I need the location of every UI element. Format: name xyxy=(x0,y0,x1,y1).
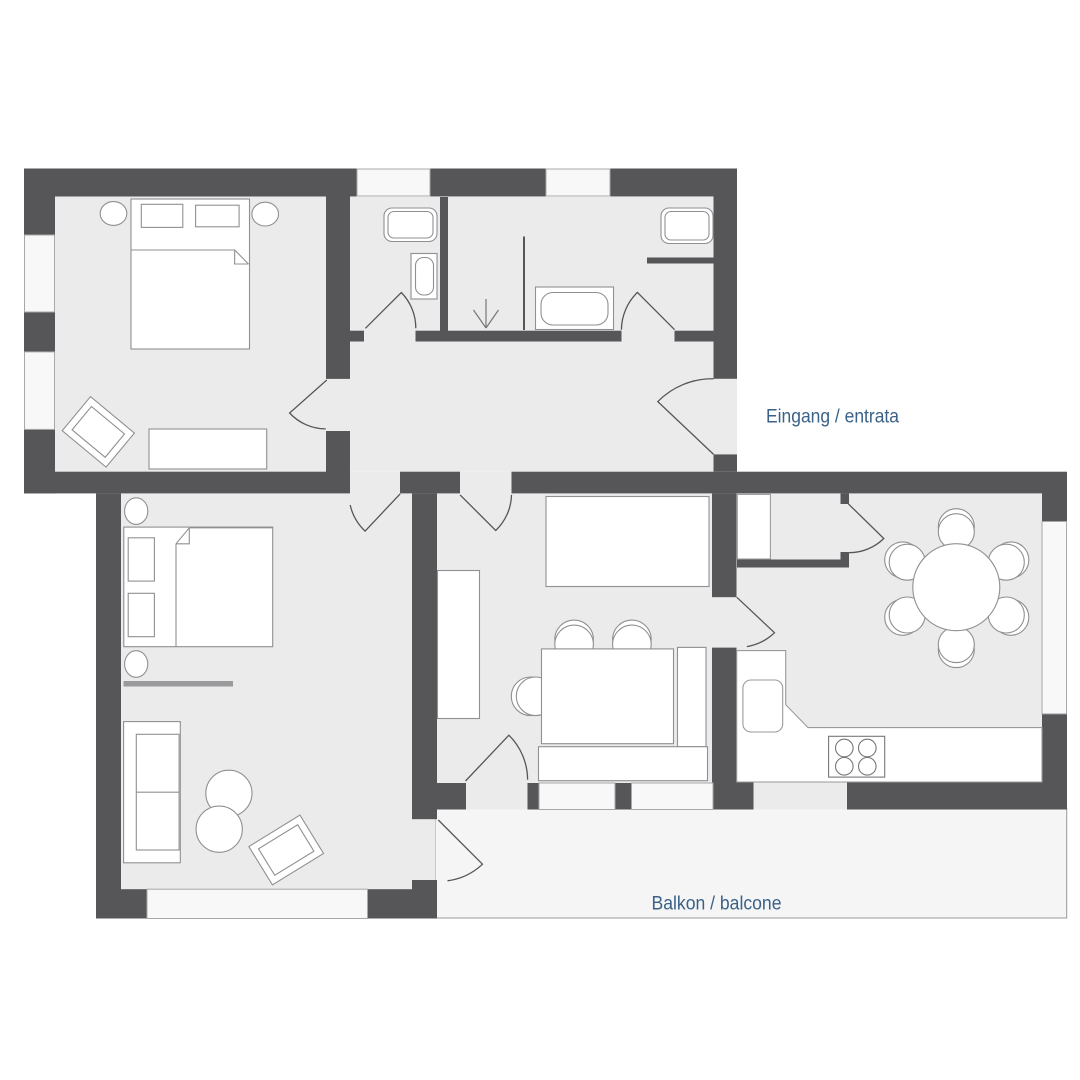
svg-text:Eingang / entrata: Eingang / entrata xyxy=(766,407,899,428)
svg-text:Balkon / balcone: Balkon / balcone xyxy=(652,894,782,915)
